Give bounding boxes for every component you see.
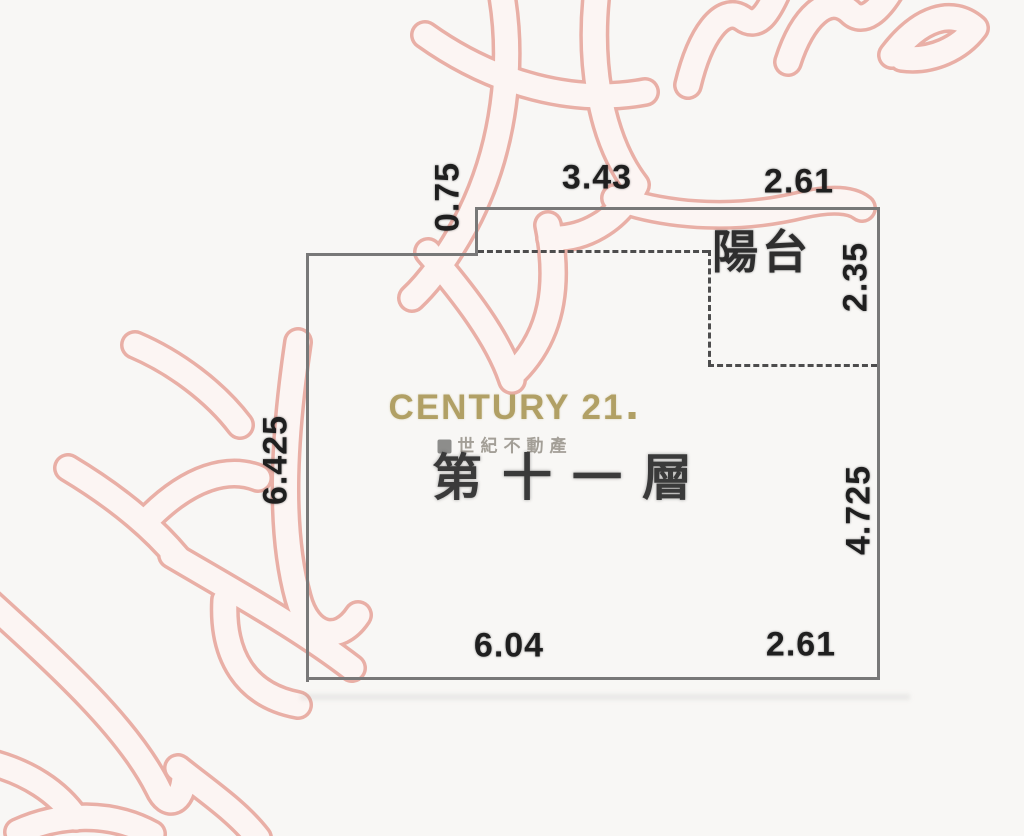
dimension-right-side: 4.725 [840, 465, 879, 555]
dimension-bottom-balcony: 2.61 [766, 626, 836, 665]
dashed-line-balcony-bottom [708, 364, 877, 367]
wall-top [475, 207, 880, 210]
wall-bottom [306, 677, 880, 680]
dimension-balcony-right: 2.35 [837, 242, 876, 312]
wall-left [306, 253, 309, 682]
wall-top-left [306, 253, 478, 256]
dimension-left-side: 6.425 [257, 415, 296, 505]
artifact-smudge [300, 694, 910, 700]
trademark-square-icon [628, 412, 635, 419]
wall-step [475, 207, 478, 256]
dimension-step-left: 0.75 [429, 162, 468, 232]
floor-plan-canvas: 0.75 3.43 2.61 2.35 6.425 4.725 6.04 2.6… [0, 0, 1024, 836]
dimension-bottom-main: 6.04 [474, 627, 544, 666]
century21-logo-text: CENTURY 21 [389, 388, 625, 427]
balcony-label: 陽台 [712, 216, 812, 282]
century21-logo: CENTURY 21 [389, 388, 636, 428]
floor-label: 第十一層 [432, 438, 712, 510]
wall-right [877, 207, 880, 680]
dimension-top-main: 3.43 [562, 159, 632, 198]
dashed-line-top-interior [478, 250, 708, 253]
dashed-line-balcony-left [708, 250, 711, 366]
dimension-top-balcony: 2.61 [764, 163, 834, 202]
